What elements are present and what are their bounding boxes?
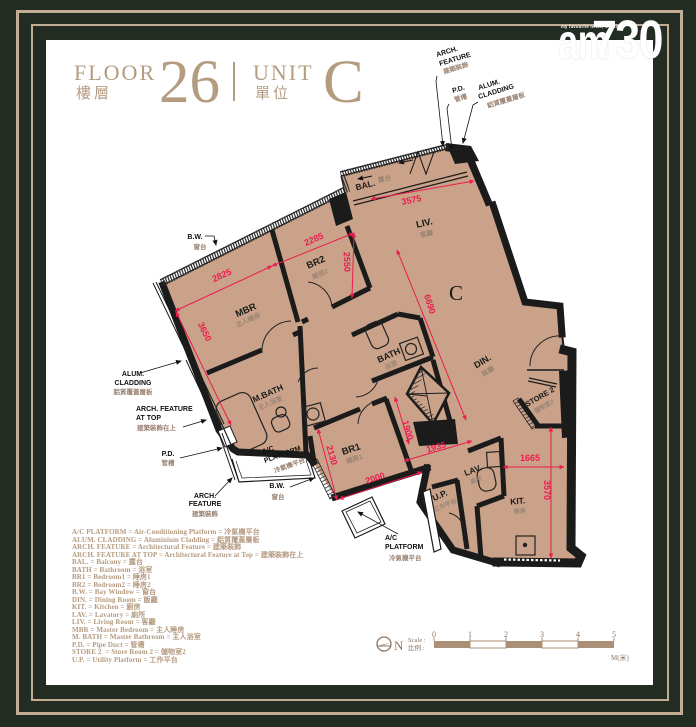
svg-text:CLADDING: CLADDING — [115, 380, 152, 387]
svg-text:2550: 2550 — [342, 252, 353, 272]
svg-text:0: 0 — [432, 630, 436, 639]
svg-text:4: 4 — [576, 630, 580, 639]
svg-text:PLATFORM: PLATFORM — [385, 544, 424, 551]
svg-text:3: 3 — [540, 630, 544, 639]
svg-text:5: 5 — [612, 630, 616, 639]
svg-text:AT TOP: AT TOP — [136, 415, 161, 422]
svg-text:ALUM.: ALUM. — [122, 371, 144, 378]
svg-text:ARCH.: ARCH. — [194, 493, 216, 500]
svg-text:窗台: 窗台 — [194, 242, 208, 251]
svg-text:比例 :: 比例 : — [408, 643, 425, 652]
svg-text:N: N — [394, 638, 404, 653]
svg-text:B.W.: B.W. — [269, 483, 284, 490]
svg-text:鋁質覆蓋層板: 鋁質覆蓋層板 — [114, 387, 154, 396]
svg-text:1: 1 — [468, 630, 472, 639]
svg-text:1665: 1665 — [520, 453, 540, 463]
svg-text:ARCH. FEATURE: ARCH. FEATURE — [136, 406, 193, 413]
svg-text:窗台: 窗台 — [272, 492, 286, 501]
svg-text:P.D.: P.D. — [162, 451, 175, 458]
svg-text:管槽: 管槽 — [162, 458, 176, 467]
svg-text:M(米): M(米) — [611, 653, 630, 662]
svg-text:B.W.: B.W. — [187, 234, 202, 241]
svg-text:建築裝飾: 建築裝飾 — [191, 509, 219, 518]
svg-text:冷氣機平台: 冷氣機平台 — [389, 553, 422, 562]
svg-text:C: C — [449, 281, 463, 305]
svg-text:Scale :: Scale : — [408, 637, 426, 644]
svg-text:3570: 3570 — [542, 480, 552, 500]
svg-text:KIT.: KIT. — [510, 495, 526, 506]
svg-text:A/C: A/C — [385, 535, 397, 542]
svg-text:建築裝飾在上: 建築裝飾在上 — [136, 423, 177, 432]
svg-text:FEATURE: FEATURE — [189, 501, 222, 508]
svg-text:2: 2 — [504, 630, 508, 639]
